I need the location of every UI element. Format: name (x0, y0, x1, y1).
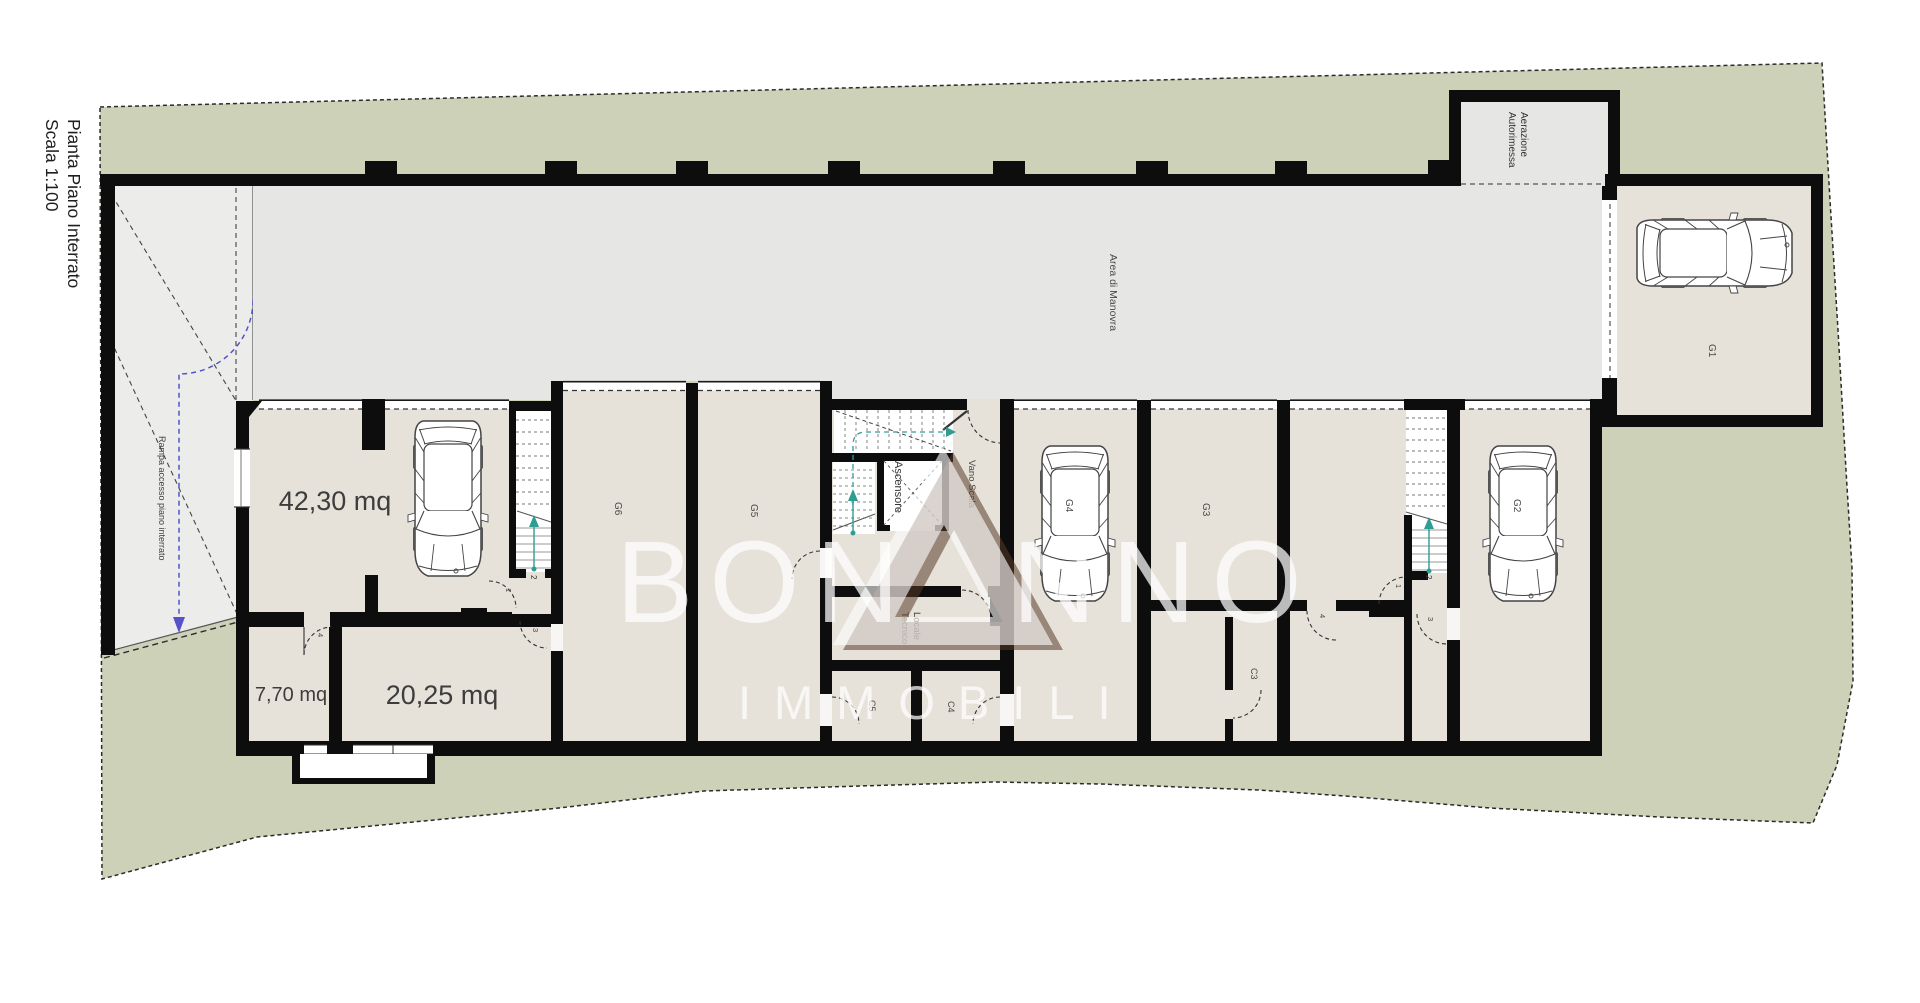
svg-text:G1: G1 (1706, 344, 1717, 358)
svg-text:42,30 mq: 42,30 mq (279, 486, 392, 516)
svg-text:IMMOBILI: IMMOBILI (738, 676, 1134, 729)
svg-text:Rampa accesso piano interrato: Rampa accesso piano interrato (157, 436, 167, 561)
svg-text:Area di Manovra: Area di Manovra (1107, 254, 1119, 331)
svg-text:Autorimessa: Autorimessa (1506, 112, 1517, 168)
svg-text:Scala 1:100: Scala 1:100 (42, 119, 62, 212)
svg-text:G5: G5 (748, 504, 759, 518)
svg-text:1: 1 (1394, 584, 1403, 588)
svg-text:G4: G4 (1063, 499, 1074, 513)
svg-text:1: 1 (504, 588, 513, 592)
svg-text:3: 3 (1426, 617, 1435, 621)
svg-text:4: 4 (1318, 614, 1327, 618)
svg-text:C3: C3 (1249, 668, 1259, 680)
svg-text:G3: G3 (1200, 503, 1211, 517)
svg-text:Ascensore: Ascensore (892, 461, 904, 513)
svg-text:G6: G6 (612, 502, 623, 516)
svg-text:BON: BON (616, 517, 915, 647)
svg-text:NNO: NNO (1012, 517, 1318, 647)
svg-text:Pianta Piano Interrato: Pianta Piano Interrato (64, 119, 84, 288)
svg-text:4: 4 (316, 633, 325, 637)
svg-text:3: 3 (531, 628, 540, 632)
svg-text:G2: G2 (1511, 499, 1522, 513)
svg-text:Aerazione: Aerazione (1518, 112, 1529, 157)
svg-text:20,25 mq: 20,25 mq (386, 680, 499, 710)
svg-text:2: 2 (1424, 575, 1433, 580)
svg-text:2: 2 (529, 575, 538, 580)
svg-text:7,70 mq: 7,70 mq (255, 684, 327, 706)
